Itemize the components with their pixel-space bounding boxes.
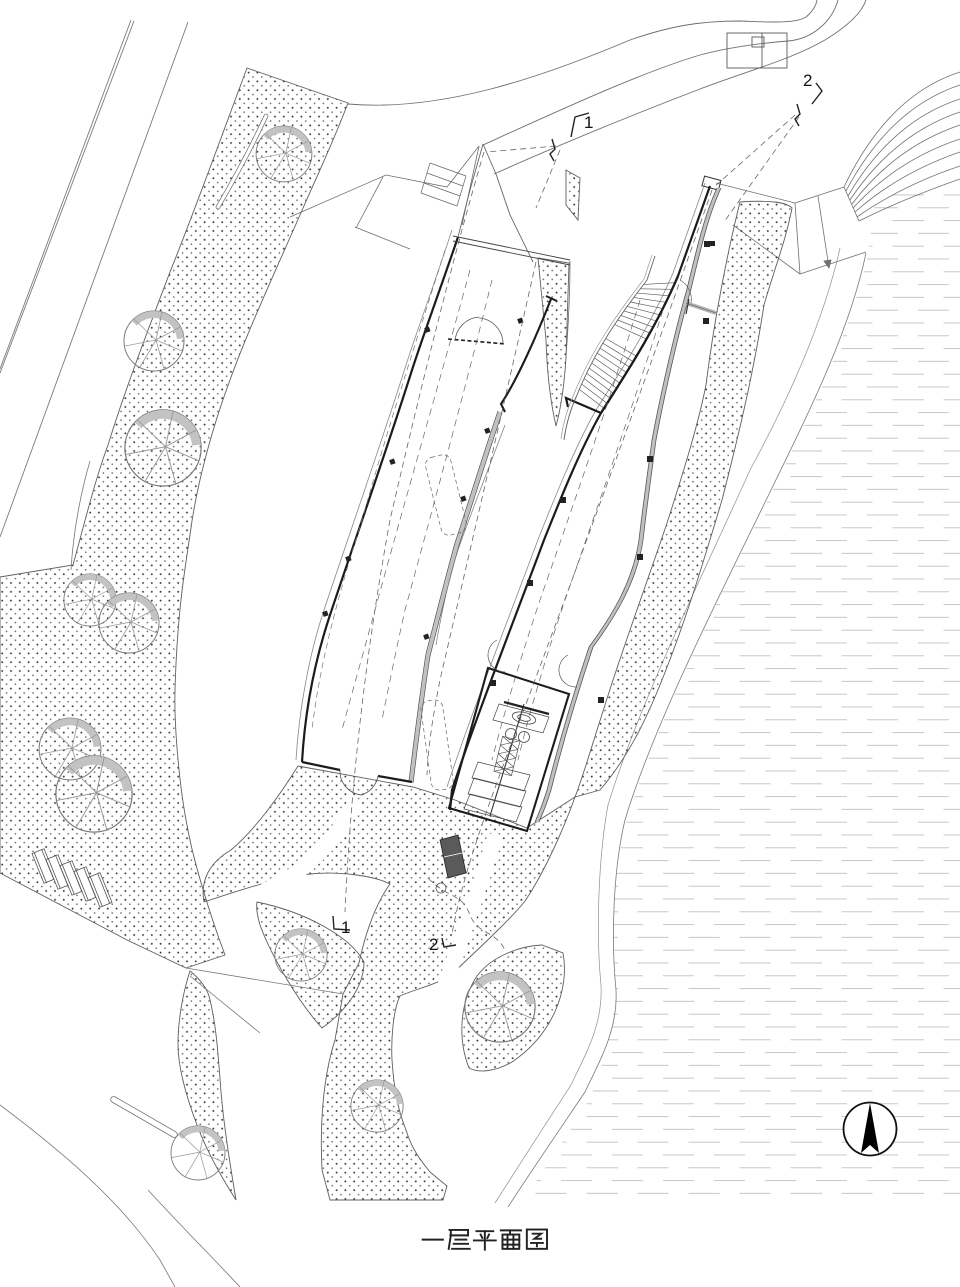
svg-text:2: 2 [803,71,812,90]
svg-text:1: 1 [584,113,593,132]
svg-text:2: 2 [429,935,438,954]
svg-text:1: 1 [341,918,350,937]
